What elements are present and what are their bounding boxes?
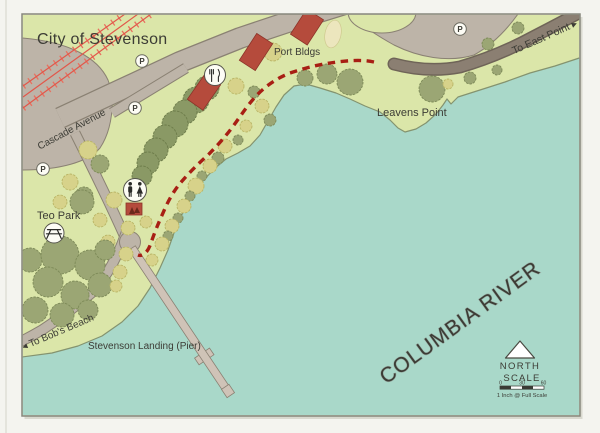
teo-park-label: Teo Park	[37, 210, 81, 222]
map-content: P P P P City of Stevenson Port Bldgs Lea…	[16, 0, 588, 416]
picnic-table-icon	[44, 223, 64, 243]
scale-tick-30: 30	[519, 381, 525, 387]
scale-note: 1 Inch @ Full Scale	[497, 393, 547, 399]
restroom-building	[126, 203, 142, 215]
restroom-icon	[124, 179, 147, 202]
leavens-point-label: Leavens Point	[377, 107, 447, 119]
parking-marker: P	[129, 102, 142, 115]
parking-marker: P	[136, 55, 149, 68]
parking-letter: P	[40, 165, 46, 174]
stevenson-landing-label: Stevenson Landing (Pier)	[88, 341, 201, 352]
parking-marker: P	[37, 163, 50, 176]
scale-bar: SCALE 0 30 60 1 Inch @ Full Scale	[497, 373, 547, 399]
parking-letter: P	[132, 104, 138, 113]
north-label: NORTH	[500, 361, 541, 372]
map-title: City of Stevenson	[37, 31, 168, 48]
parking-letter: P	[139, 57, 145, 66]
port-bldgs-label: Port Bldgs	[274, 47, 320, 58]
parking-letter: P	[457, 25, 463, 34]
scale-tick-0: 0	[499, 381, 502, 387]
restaurant-icon	[205, 65, 226, 86]
scale-tick-60: 60	[541, 381, 547, 387]
stevenson-map: P P P P City of Stevenson Port Bldgs Lea…	[0, 0, 600, 433]
parking-marker: P	[454, 23, 467, 36]
